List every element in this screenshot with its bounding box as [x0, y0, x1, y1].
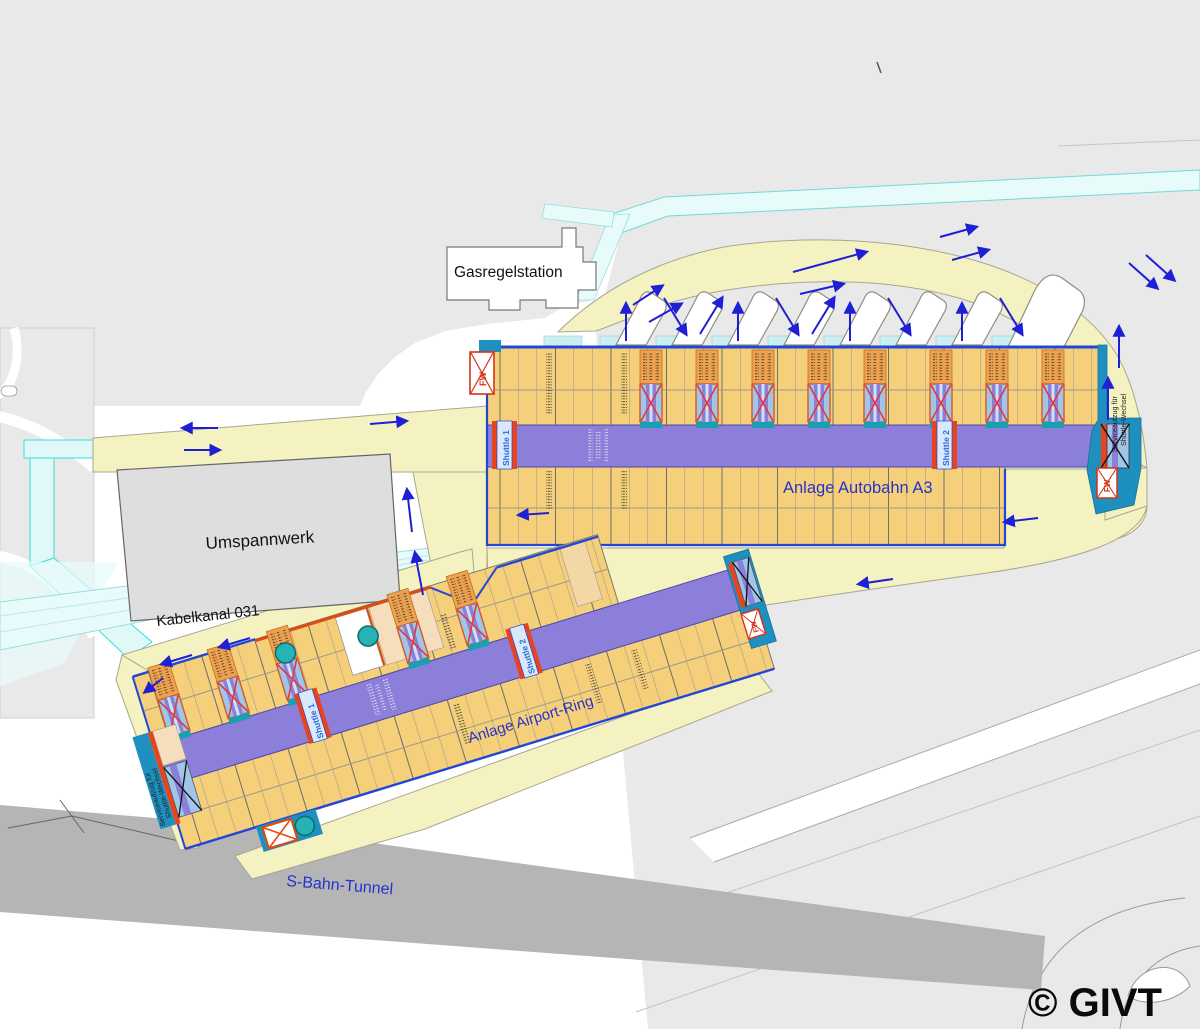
- fw-box-a3-west: FW: [470, 352, 494, 394]
- fw-label: FW: [478, 372, 488, 386]
- service-lift-label-a3-line1: Serviceaufzug für: [1110, 395, 1119, 452]
- copyright-givt: © GIVT: [1028, 981, 1162, 1025]
- service-lift-label-a3-line2: Shuttle-Wechsel: [1119, 393, 1128, 446]
- shuttle-2-label: Shuttle 2: [941, 430, 951, 466]
- gasregelstation-label: Gasregelstation: [454, 264, 563, 281]
- building-umspannwerk: Umspannwerk: [117, 454, 400, 621]
- shuttle-1-label: Shuttle 1: [501, 430, 511, 466]
- shuttle-1-dock-a3: Shuttle 1: [492, 421, 517, 469]
- fw-box-a3-east: FW: [1097, 468, 1117, 498]
- site-plan-svg: Gasregelstation Umspannwerk FW: [0, 0, 1200, 1029]
- anlage-autobahn-a3-label: Anlage Autobahn A3: [783, 479, 933, 497]
- shuttle-2-dock-a3: Shuttle 2: [932, 421, 957, 469]
- fw-label: FW: [1103, 479, 1112, 492]
- shuttle-aisle-a3: [487, 425, 1105, 467]
- site-plan: Gasregelstation Umspannwerk FW: [0, 0, 1200, 1029]
